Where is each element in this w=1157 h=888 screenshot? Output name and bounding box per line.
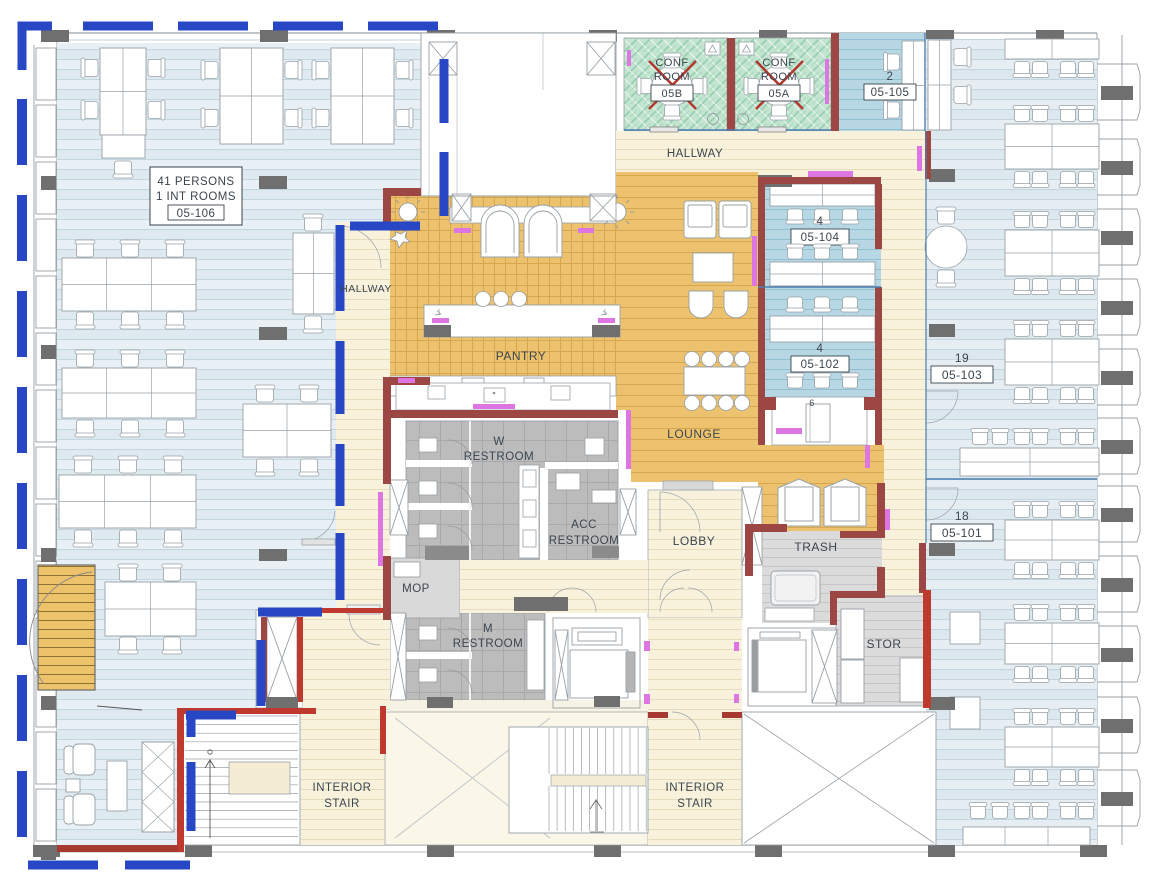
svg-text:HALLWAY: HALLWAY xyxy=(667,148,723,160)
svg-text:2: 2 xyxy=(887,71,894,83)
svg-text:05B: 05B xyxy=(661,88,682,100)
svg-text:05-102: 05-102 xyxy=(801,359,840,371)
svg-text:RESTROOM: RESTROOM xyxy=(549,535,619,547)
svg-text:STOR: STOR xyxy=(866,637,901,651)
svg-text:18: 18 xyxy=(955,509,969,523)
svg-text:M: M xyxy=(483,623,493,635)
svg-text:LOUNGE: LOUNGE xyxy=(667,427,721,441)
svg-text:05-105: 05-105 xyxy=(871,87,910,99)
svg-text:05A: 05A xyxy=(768,88,789,100)
svg-text:HALLWAY: HALLWAY xyxy=(340,283,392,295)
svg-text:19: 19 xyxy=(955,351,969,365)
svg-text:LOBBY: LOBBY xyxy=(673,534,716,548)
svg-text:INTERIOR: INTERIOR xyxy=(666,782,725,794)
svg-text:STAIR: STAIR xyxy=(677,798,713,810)
svg-text:W: W xyxy=(493,436,504,448)
svg-text:41 PERSONS: 41 PERSONS xyxy=(157,176,234,188)
svg-text:05-106: 05-106 xyxy=(177,208,216,220)
svg-text:RESTROOM: RESTROOM xyxy=(464,451,534,463)
svg-text:6: 6 xyxy=(809,398,815,408)
svg-text:CONF: CONF xyxy=(762,57,795,69)
svg-text:INTERIOR: INTERIOR xyxy=(313,782,372,794)
svg-text:ROOM: ROOM xyxy=(761,71,797,83)
svg-text:TRASH: TRASH xyxy=(794,540,837,554)
svg-text:PANTRY: PANTRY xyxy=(496,349,547,363)
svg-text:STAIR: STAIR xyxy=(324,798,360,810)
svg-text:05-101: 05-101 xyxy=(942,526,982,540)
svg-text:05-104: 05-104 xyxy=(801,232,840,244)
svg-text:ROOM: ROOM xyxy=(654,71,690,83)
svg-text:RESTROOM: RESTROOM xyxy=(453,638,523,650)
svg-text:05-103: 05-103 xyxy=(942,368,982,382)
svg-text:CONF: CONF xyxy=(655,57,688,69)
svg-text:ACC: ACC xyxy=(571,519,597,531)
svg-text:4: 4 xyxy=(817,216,824,228)
svg-text:MOP: MOP xyxy=(402,583,430,595)
svg-text:1 INT ROOMS: 1 INT ROOMS xyxy=(156,191,236,203)
svg-text:4: 4 xyxy=(817,343,824,355)
